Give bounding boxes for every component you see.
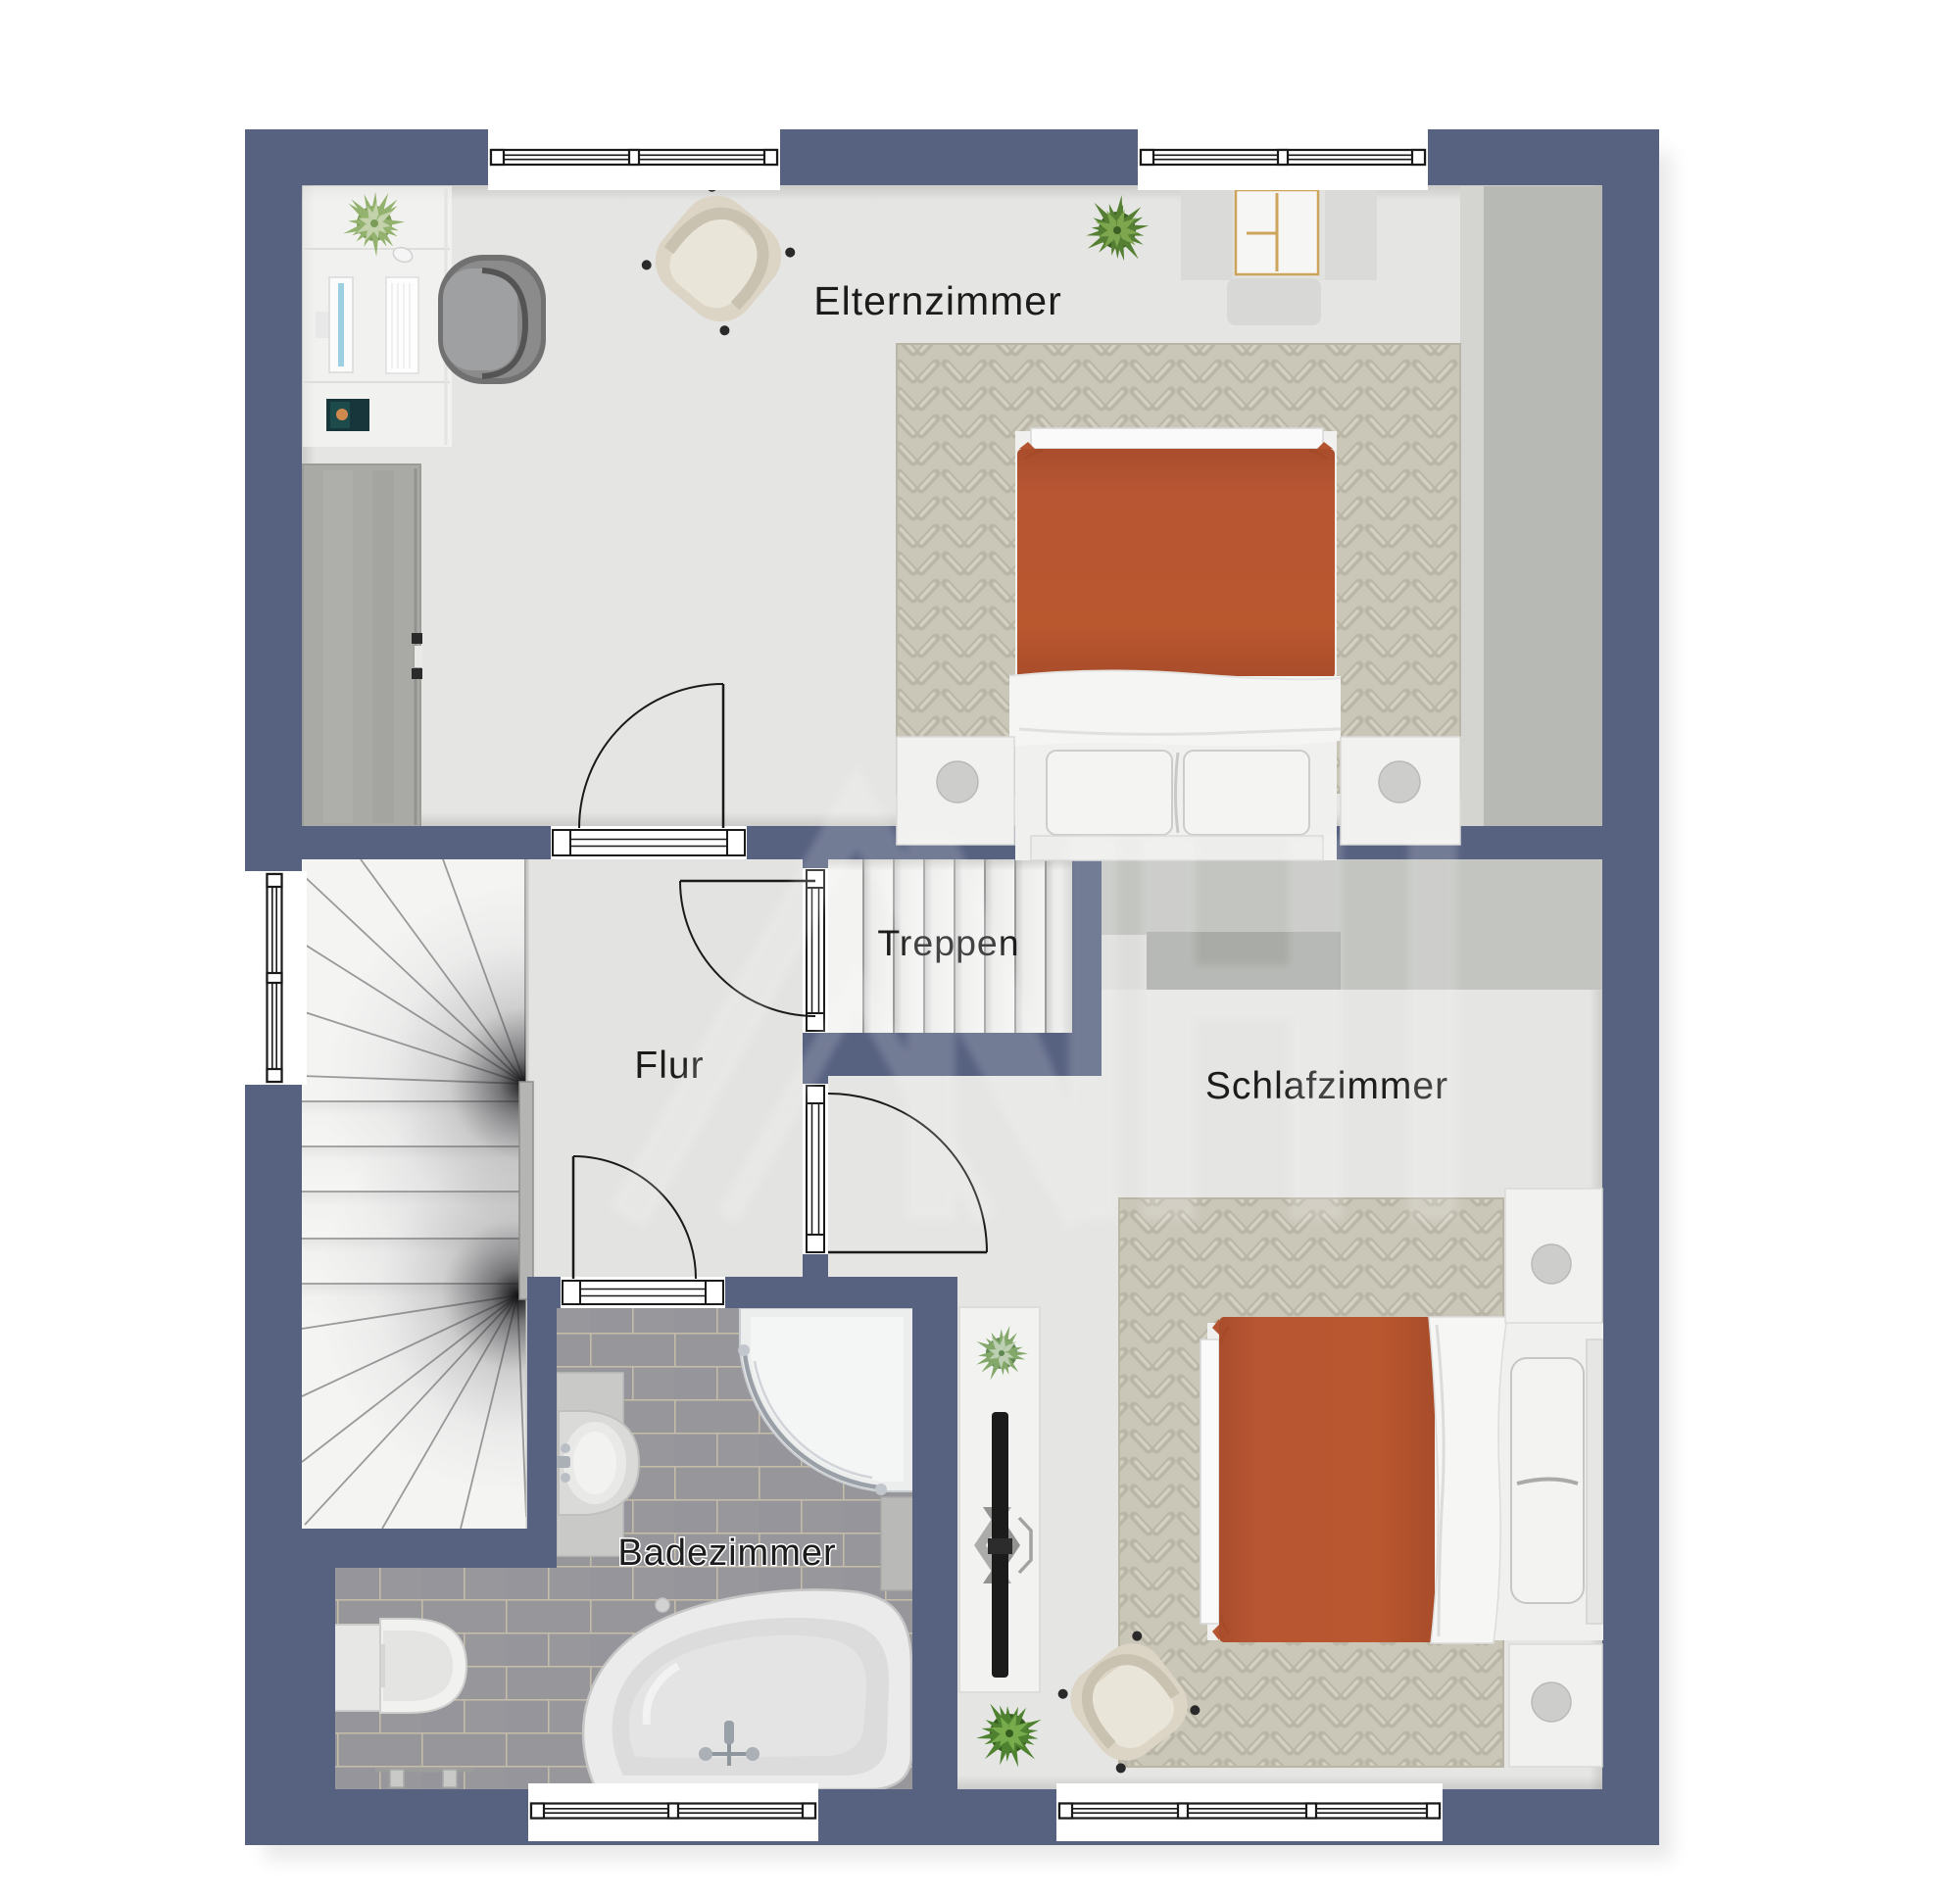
svg-text:Badezimmer: Badezimmer <box>617 1533 836 1574</box>
svg-text:Elternzimmer: Elternzimmer <box>813 278 1061 323</box>
